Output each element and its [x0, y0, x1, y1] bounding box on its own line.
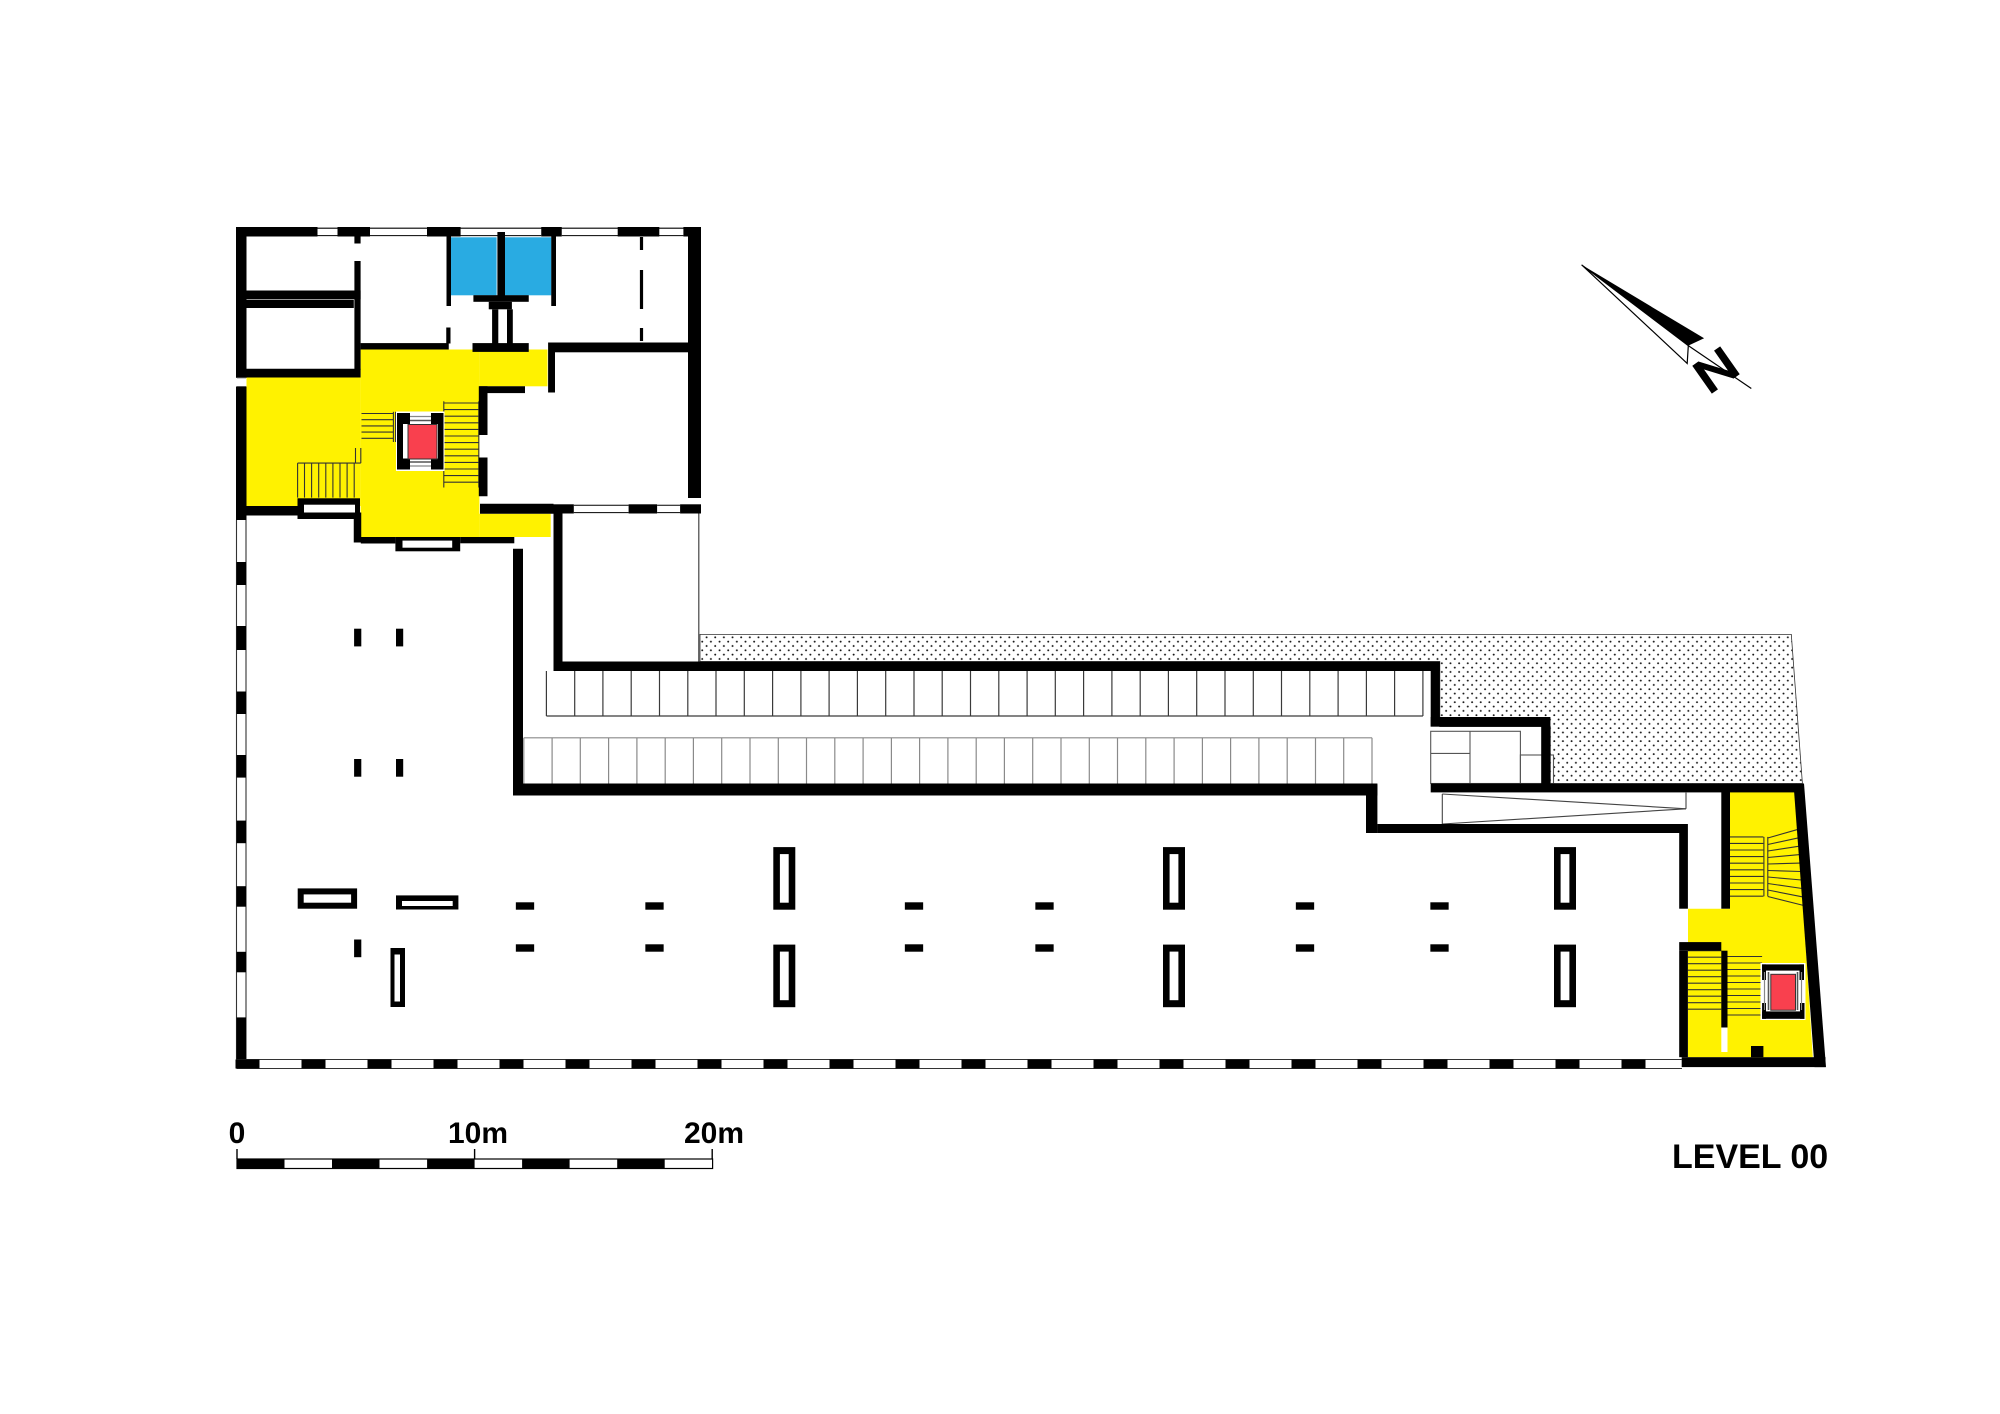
- svg-text:0: 0: [229, 1117, 246, 1150]
- svg-text:10m: 10m: [448, 1117, 508, 1150]
- svg-text:20m: 20m: [684, 1117, 744, 1150]
- svg-text:LEVEL 00: LEVEL 00: [1672, 1138, 1828, 1176]
